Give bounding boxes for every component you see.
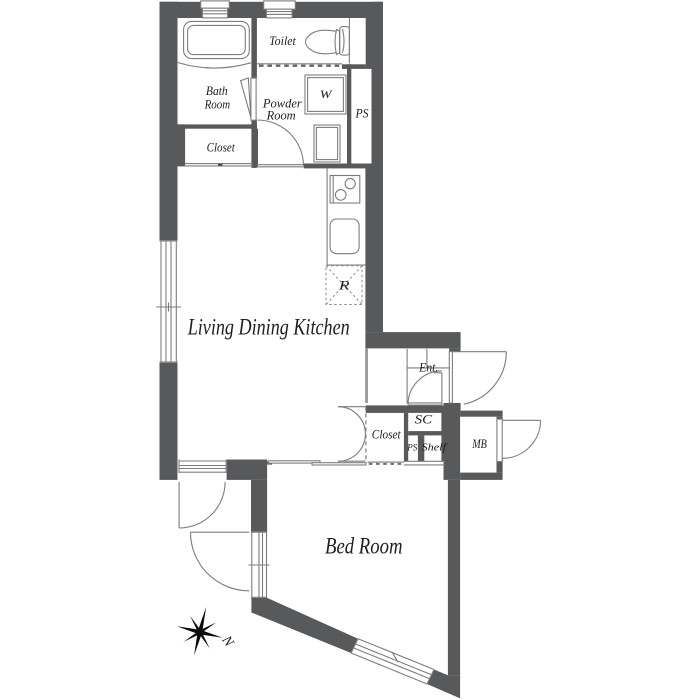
svg-text:Room: Room xyxy=(204,96,230,111)
svg-text:Ent.: Ent. xyxy=(418,360,438,375)
svg-text:SC: SC xyxy=(415,413,433,427)
svg-text:MB: MB xyxy=(471,436,486,451)
svg-text:Closet: Closet xyxy=(372,427,401,442)
svg-text:Toilet: Toilet xyxy=(269,33,296,48)
svg-text:PS: PS xyxy=(406,444,417,454)
svg-text:Closet: Closet xyxy=(207,140,236,155)
svg-text:R: R xyxy=(338,278,350,293)
svg-text:W: W xyxy=(320,87,333,101)
svg-text:Bed Room: Bed Room xyxy=(325,534,403,560)
svg-text:Shelf: Shelf xyxy=(422,442,449,454)
svg-text:Living Dining Kitchen: Living Dining Kitchen xyxy=(187,314,350,340)
svg-text:PS: PS xyxy=(355,107,370,121)
svg-text:Room: Room xyxy=(266,108,296,123)
